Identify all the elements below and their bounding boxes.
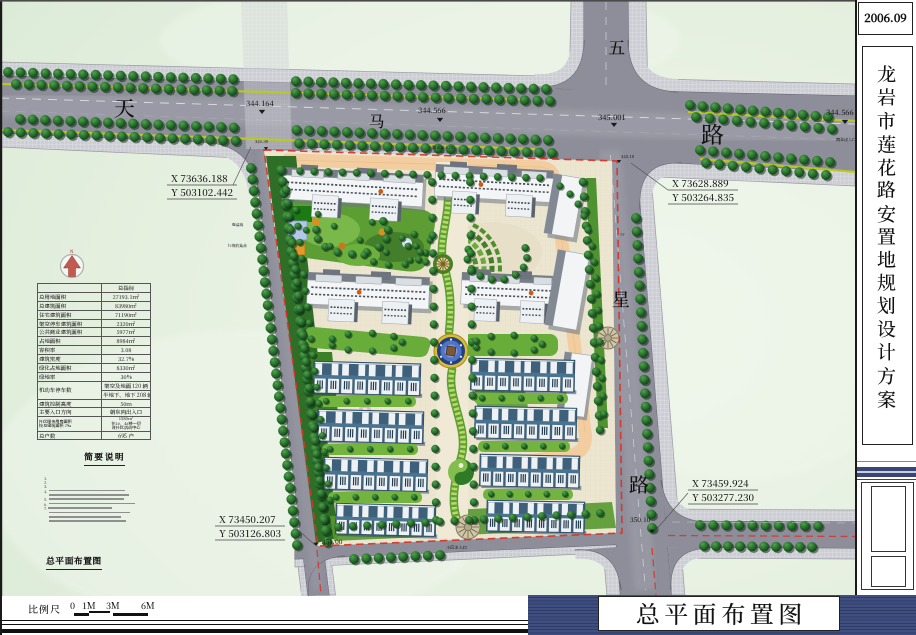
- svg-text:马: 马: [369, 110, 385, 132]
- svg-text:341.30: 341.30: [255, 139, 269, 145]
- svg-text:垃圾收集点: 垃圾收集点: [227, 243, 247, 249]
- svg-text:天: 天: [114, 93, 135, 123]
- svg-text:345.001: 345.001: [598, 112, 626, 123]
- svg-text:X 73636.188: X 73636.188: [171, 171, 228, 185]
- svg-text:五: 五: [608, 34, 625, 59]
- svg-text:X 73628.889: X 73628.889: [672, 176, 729, 190]
- svg-text:Y 503126.803: Y 503126.803: [219, 526, 281, 540]
- svg-text:路: 路: [629, 469, 650, 498]
- svg-text:路: 路: [701, 117, 724, 150]
- svg-text:商业出入口: 商业出入口: [836, 137, 856, 143]
- svg-text:350.10: 350.10: [630, 515, 651, 524]
- svg-text:345.10: 345.10: [621, 154, 635, 160]
- svg-text:344.566: 344.566: [418, 105, 446, 116]
- svg-text:X 73459.924: X 73459.924: [692, 476, 749, 490]
- svg-text:Y 503277.230: Y 503277.230: [692, 490, 754, 504]
- svg-text:星: 星: [612, 286, 630, 312]
- svg-text:电信房: 电信房: [232, 222, 244, 228]
- svg-text:N: N: [69, 249, 74, 255]
- svg-text:Y 503102.442: Y 503102.442: [171, 185, 233, 199]
- svg-text:344.164: 344.164: [246, 98, 275, 109]
- svg-text:351.00: 351.00: [322, 537, 343, 546]
- svg-text:344.566: 344.566: [826, 107, 854, 118]
- svg-text:小区主入口: 小区主入口: [446, 545, 467, 551]
- svg-text:Y 503264.835: Y 503264.835: [672, 190, 734, 204]
- svg-text:商业出入口: 商业出入口: [432, 145, 453, 151]
- svg-text:7F: 7F: [620, 232, 625, 238]
- svg-text:X 73450.207: X 73450.207: [219, 512, 276, 526]
